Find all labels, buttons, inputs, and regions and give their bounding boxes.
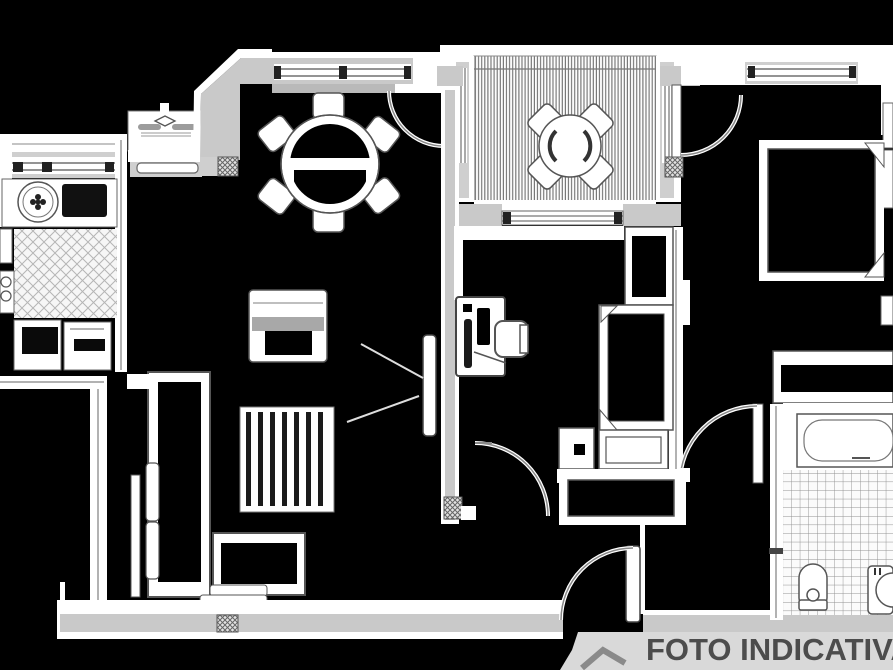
svg-text:FOTO INDICATIVA: FOTO INDICATIVA bbox=[646, 632, 893, 667]
